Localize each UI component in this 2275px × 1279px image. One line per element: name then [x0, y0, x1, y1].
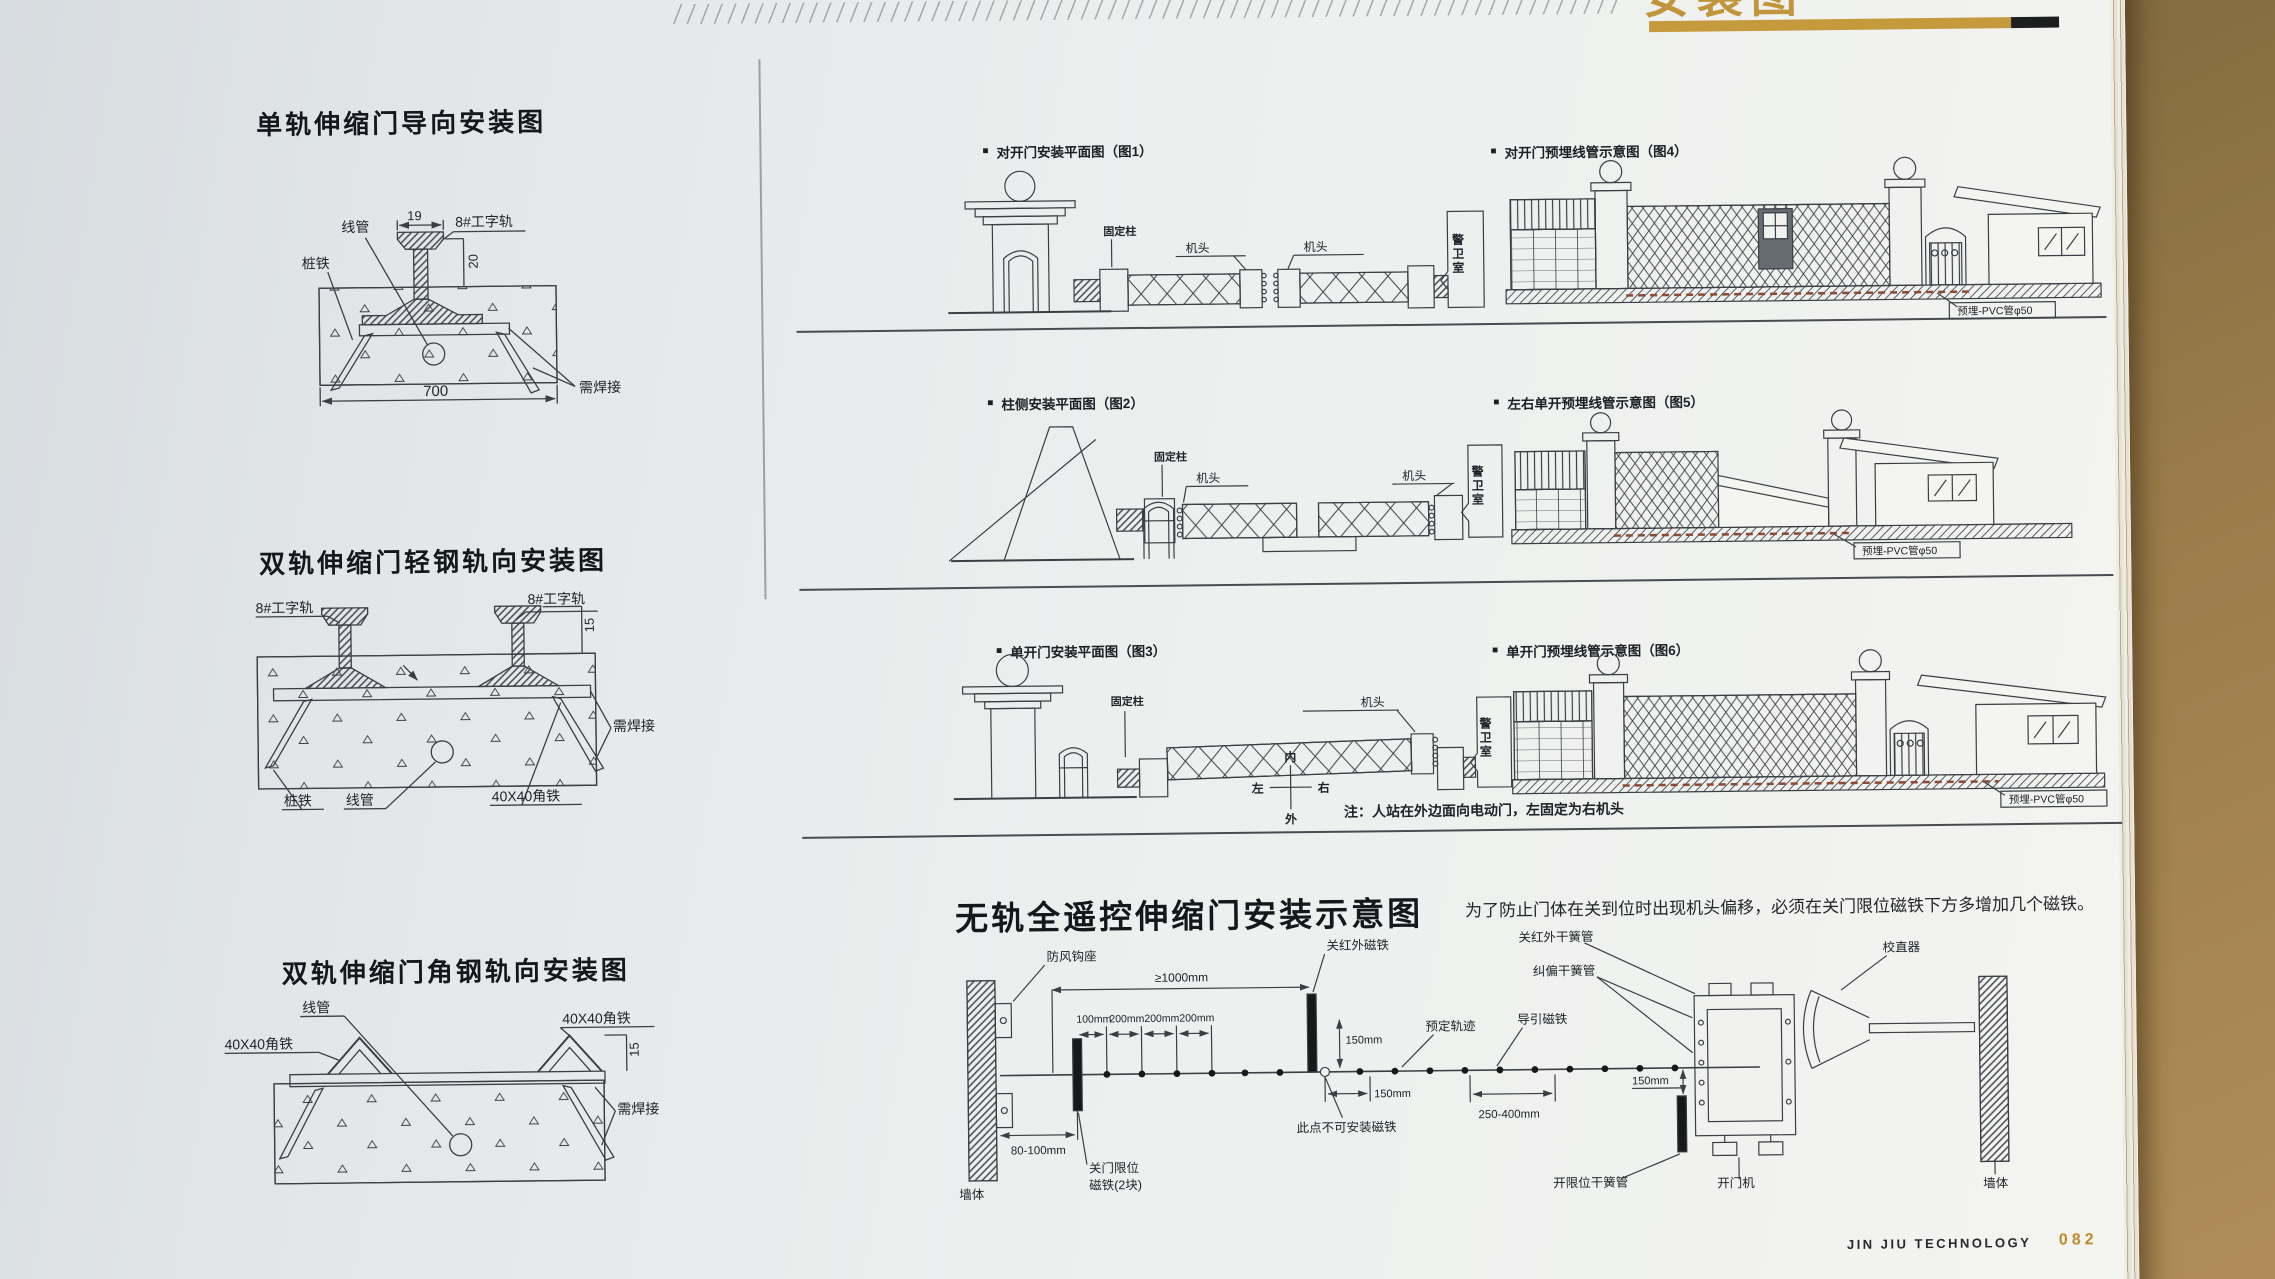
label-pvc-pipe: 预埋-PVC管φ50 [1862, 544, 1937, 558]
top-hatch-border [669, 0, 1621, 24]
label-head-left: 机头 [1196, 471, 1220, 485]
label-dim-150-c: 150mm [1632, 1075, 1669, 1087]
label-close-limit-1: 关门限位 [1089, 1160, 1139, 1176]
page-content: 安装图 INSTALLATION DRAWINGS 单轨伸缩门导向安装图 [0, 0, 2275, 1279]
label-head-right: 机头 [1303, 240, 1327, 254]
label-angle: 40X40角铁 [492, 788, 561, 805]
drawing-shapes [952, 649, 1512, 813]
label-fixed-post: 固定柱 [1103, 224, 1136, 238]
label-dim-1000: ≥1000mm [1155, 970, 1208, 985]
label-fixed-post: 固定柱 [1111, 694, 1144, 708]
label-open-limit-reed: 开限位干簧管 [1553, 1174, 1628, 1190]
label-guard-room: 警卫室 [1478, 716, 1492, 760]
label-weld: 需焊接 [617, 1100, 659, 1116]
trackless-drawing: 防风钩座 关红外磁铁 关红外干簧管 纠偏干簧管 校直器 ≥1000mm 100m… [938, 922, 2176, 1206]
label-dim-150-b: 150mm [1374, 1088, 1411, 1100]
label-dim-250-400: 250-400mm [1478, 1108, 1540, 1121]
label-conduit: 线管 [346, 792, 374, 808]
title-black-bar [2011, 17, 2059, 29]
drawing-shapes [318, 218, 575, 406]
label-wall-right: 墙体 [1983, 1176, 2009, 1190]
left-diagram3-title: 双轨伸缩门角钢轨向安装图 [282, 950, 630, 991]
fig4-drawing: 预埋-PVC管φ50 [1499, 143, 2111, 335]
diagram-double-rail-angle: 线管 40X40角铁 40X40角铁 15 需焊接 [164, 994, 711, 1205]
label-dim-200-3: 200mm [1179, 1012, 1214, 1024]
label-head-right: 机头 [1402, 469, 1426, 483]
footer-brand: JIN JIU TECHNOLOGY [1847, 1235, 2032, 1252]
label-pvc-pipe: 预埋-PVC管φ50 [1957, 304, 2032, 318]
drawing-shapes [948, 422, 1503, 561]
fig3-drawing: 固定柱 机头 警卫室 内 外 左 右 注：人站在外边面向电动门，左固定为右机头 [950, 635, 1532, 842]
label-dim-100: 100mm [1076, 1013, 1111, 1025]
label-align-reed: 纠偏干簧管 [1533, 963, 1596, 979]
label-head-left: 机头 [1185, 241, 1209, 255]
label-dir-out: 外 [1285, 811, 1297, 826]
label-close-limit-2: 磁铁(2块) [1089, 1177, 1142, 1193]
drawing-labels: 防风钩座 关红外磁铁 关红外干簧管 纠偏干簧管 校直器 ≥1000mm 100m… [956, 924, 2008, 1202]
label-dim-200-2: 200mm [1144, 1013, 1179, 1025]
label-stake: 桩铁 [284, 792, 312, 808]
bullet-icon: ■ [982, 147, 988, 157]
drawing-shapes [256, 605, 612, 810]
label-rail: 8#工字轨 [455, 213, 513, 230]
diagram-double-rail-steel: 8#工字轨 8#工字轨 15 需焊接 桩铁 线管 40X40角铁 [159, 589, 707, 835]
column-divider [758, 59, 766, 599]
label-weld: 需焊接 [613, 718, 655, 734]
fig1-drawing: 固定柱 机头 机头 警卫室 [945, 155, 1467, 329]
left-diagram1-title: 单轨伸缩门导向安装图 [256, 102, 546, 142]
label-no-magnet: 此点不可安装磁铁 [1296, 1119, 1397, 1135]
label-dim-200-1: 200mm [1109, 1013, 1144, 1025]
label-dir-right: 右 [1317, 780, 1330, 795]
left-diagram2-title: 双轨伸缩门轻钢轨向安装图 [259, 540, 607, 581]
label-weld: 需焊接 [579, 379, 621, 395]
label-dim-15: 15 [582, 618, 597, 633]
label-close-ir-reed: 关红外干簧管 [1518, 929, 1593, 945]
diagram-single-rail: 线管 8#工字轨 桩铁 19 20 700 需焊接 [285, 204, 668, 443]
label-angle-right: 40X40角铁 [562, 1010, 631, 1027]
drawing-shapes [1510, 407, 2072, 562]
label-close-ir-magnet: 关红外磁铁 [1326, 937, 1389, 953]
fig2-drawing: 固定柱 机头 机头 警卫室 [947, 387, 1529, 579]
bullet-icon: ■ [1490, 147, 1496, 157]
catalog-page: 安装图 INSTALLATION DRAWINGS 单轨伸缩门导向安装图 [0, 0, 2140, 1279]
label-dim-19: 19 [407, 208, 422, 223]
label-stake: 桩铁 [302, 255, 330, 271]
drawing-labels: 固定柱 机头 机头 警卫室 [1103, 220, 1465, 279]
label-wind-hook: 防风钩座 [1047, 949, 1097, 965]
label-dim-20: 20 [466, 254, 481, 269]
label-dir-in: 内 [1284, 749, 1296, 764]
footer-page-number: 082 [2059, 1231, 2098, 1249]
drawing-labels: 预埋-PVC管φ50 [1862, 544, 1937, 558]
label-rail-left: 8#工字轨 [256, 599, 314, 616]
fig5-drawing: 预埋-PVC管φ50 [1502, 383, 2114, 570]
label-guide-magnet: 导引磁铁 [1517, 1011, 1568, 1027]
label-dim-15: 15 [627, 1042, 642, 1057]
label-dim-80-100: 80-100mm [1011, 1145, 1066, 1158]
label-angle-left: 40X40角铁 [224, 1036, 293, 1053]
fig6-drawing: 预埋-PVC管φ50 [1505, 633, 2127, 830]
drawing-labels: 预埋-PVC管φ50 [1957, 304, 2032, 318]
label-track: 预定轨迹 [1425, 1018, 1476, 1034]
trackless-note: 为了防止门体在关到位时出现机头偏移，必须在关门限位磁铁下方多增加几个磁铁。 [1465, 889, 2094, 921]
label-fixed-post: 固定柱 [1154, 449, 1187, 463]
drawing-shapes [1505, 155, 2102, 324]
drawing-shapes [947, 166, 1485, 313]
drawing-labels: 预埋-PVC管φ50 [2009, 792, 2084, 806]
label-pvc-pipe: 预埋-PVC管φ50 [2009, 792, 2084, 806]
label-guard-room: 警卫室 [1470, 464, 1484, 508]
label-straightener: 校直器 [1882, 939, 1920, 954]
drawing-shapes [967, 938, 2010, 1188]
label-head: 机头 [1361, 695, 1385, 709]
label-rail-right: 8#工字轨 [527, 590, 585, 607]
label-dir-left: 左 [1251, 781, 1264, 796]
label-wall-left: 墙体 [959, 1188, 985, 1202]
label-guard-room: 警卫室 [1450, 232, 1464, 276]
catalog-photo: 安装图 INSTALLATION DRAWINGS 单轨伸缩门导向安装图 [0, 0, 2275, 1279]
label-conduit: 线管 [302, 999, 330, 1015]
label-opener: 开门机 [1717, 1175, 1755, 1190]
label-dim-150-a: 150mm [1346, 1034, 1383, 1046]
label-dim-700: 700 [423, 383, 448, 400]
drawing-shapes [1511, 647, 2107, 813]
label-conduit: 线管 [341, 219, 369, 235]
